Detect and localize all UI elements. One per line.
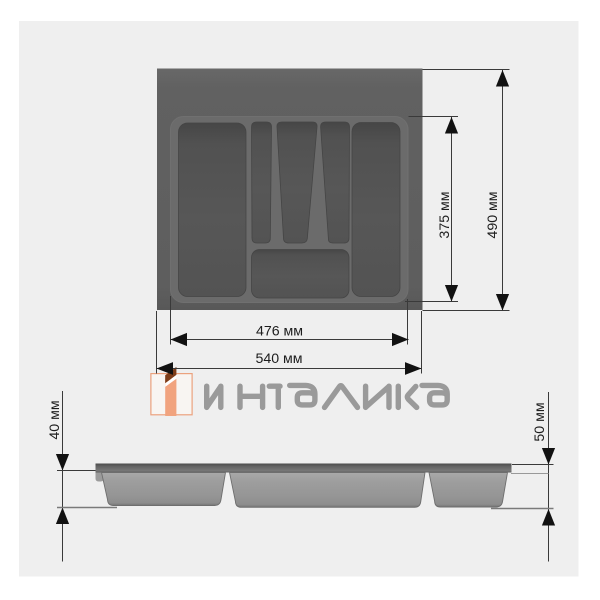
svg-text:476 мм: 476 мм	[256, 324, 303, 340]
svg-text:490 мм: 490 мм	[485, 191, 501, 238]
svg-text:375 мм: 375 мм	[437, 191, 453, 238]
svg-text:540 мм: 540 мм	[255, 351, 302, 367]
svg-text:40 мм: 40 мм	[47, 400, 63, 439]
svg-text:50 мм: 50 мм	[532, 402, 548, 441]
